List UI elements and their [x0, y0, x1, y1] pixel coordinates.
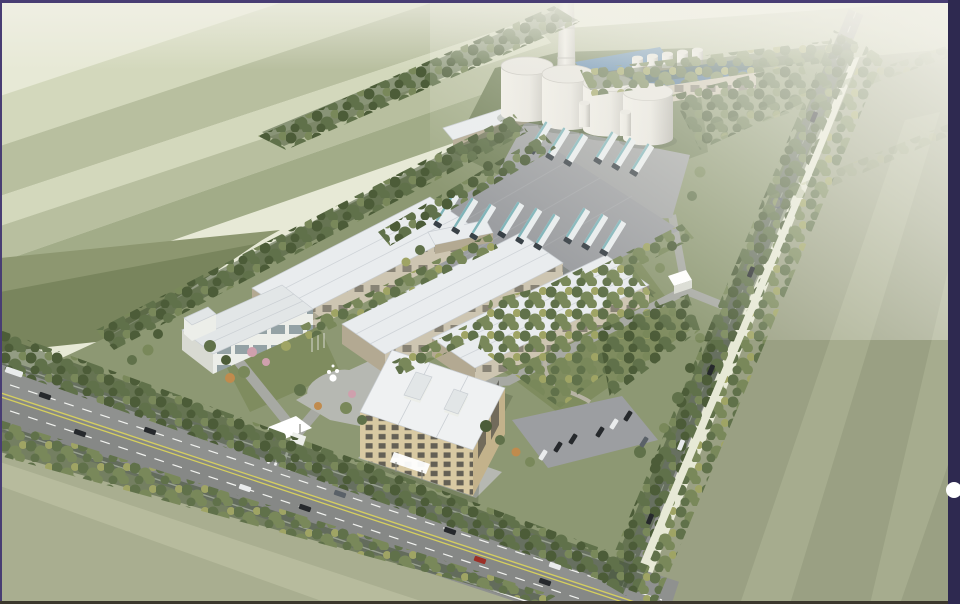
frame-left-border — [0, 0, 2, 604]
aerial-scene — [0, 0, 960, 604]
rendering-canvas — [0, 0, 960, 604]
haze-top — [0, 0, 960, 70]
frame-top-border — [0, 0, 960, 3]
frame-right-band — [948, 0, 960, 604]
